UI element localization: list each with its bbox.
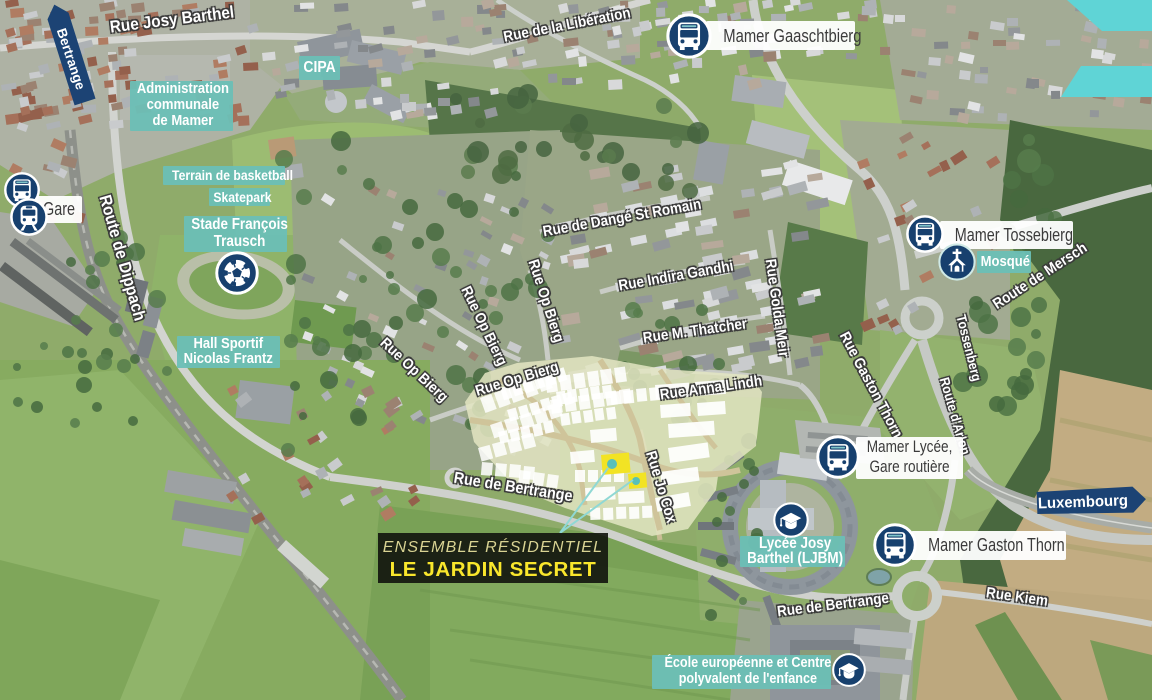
svg-text:Luxembourg: Luxembourg	[1038, 492, 1129, 512]
svg-text:Bertrange: Bertrange	[54, 26, 89, 92]
